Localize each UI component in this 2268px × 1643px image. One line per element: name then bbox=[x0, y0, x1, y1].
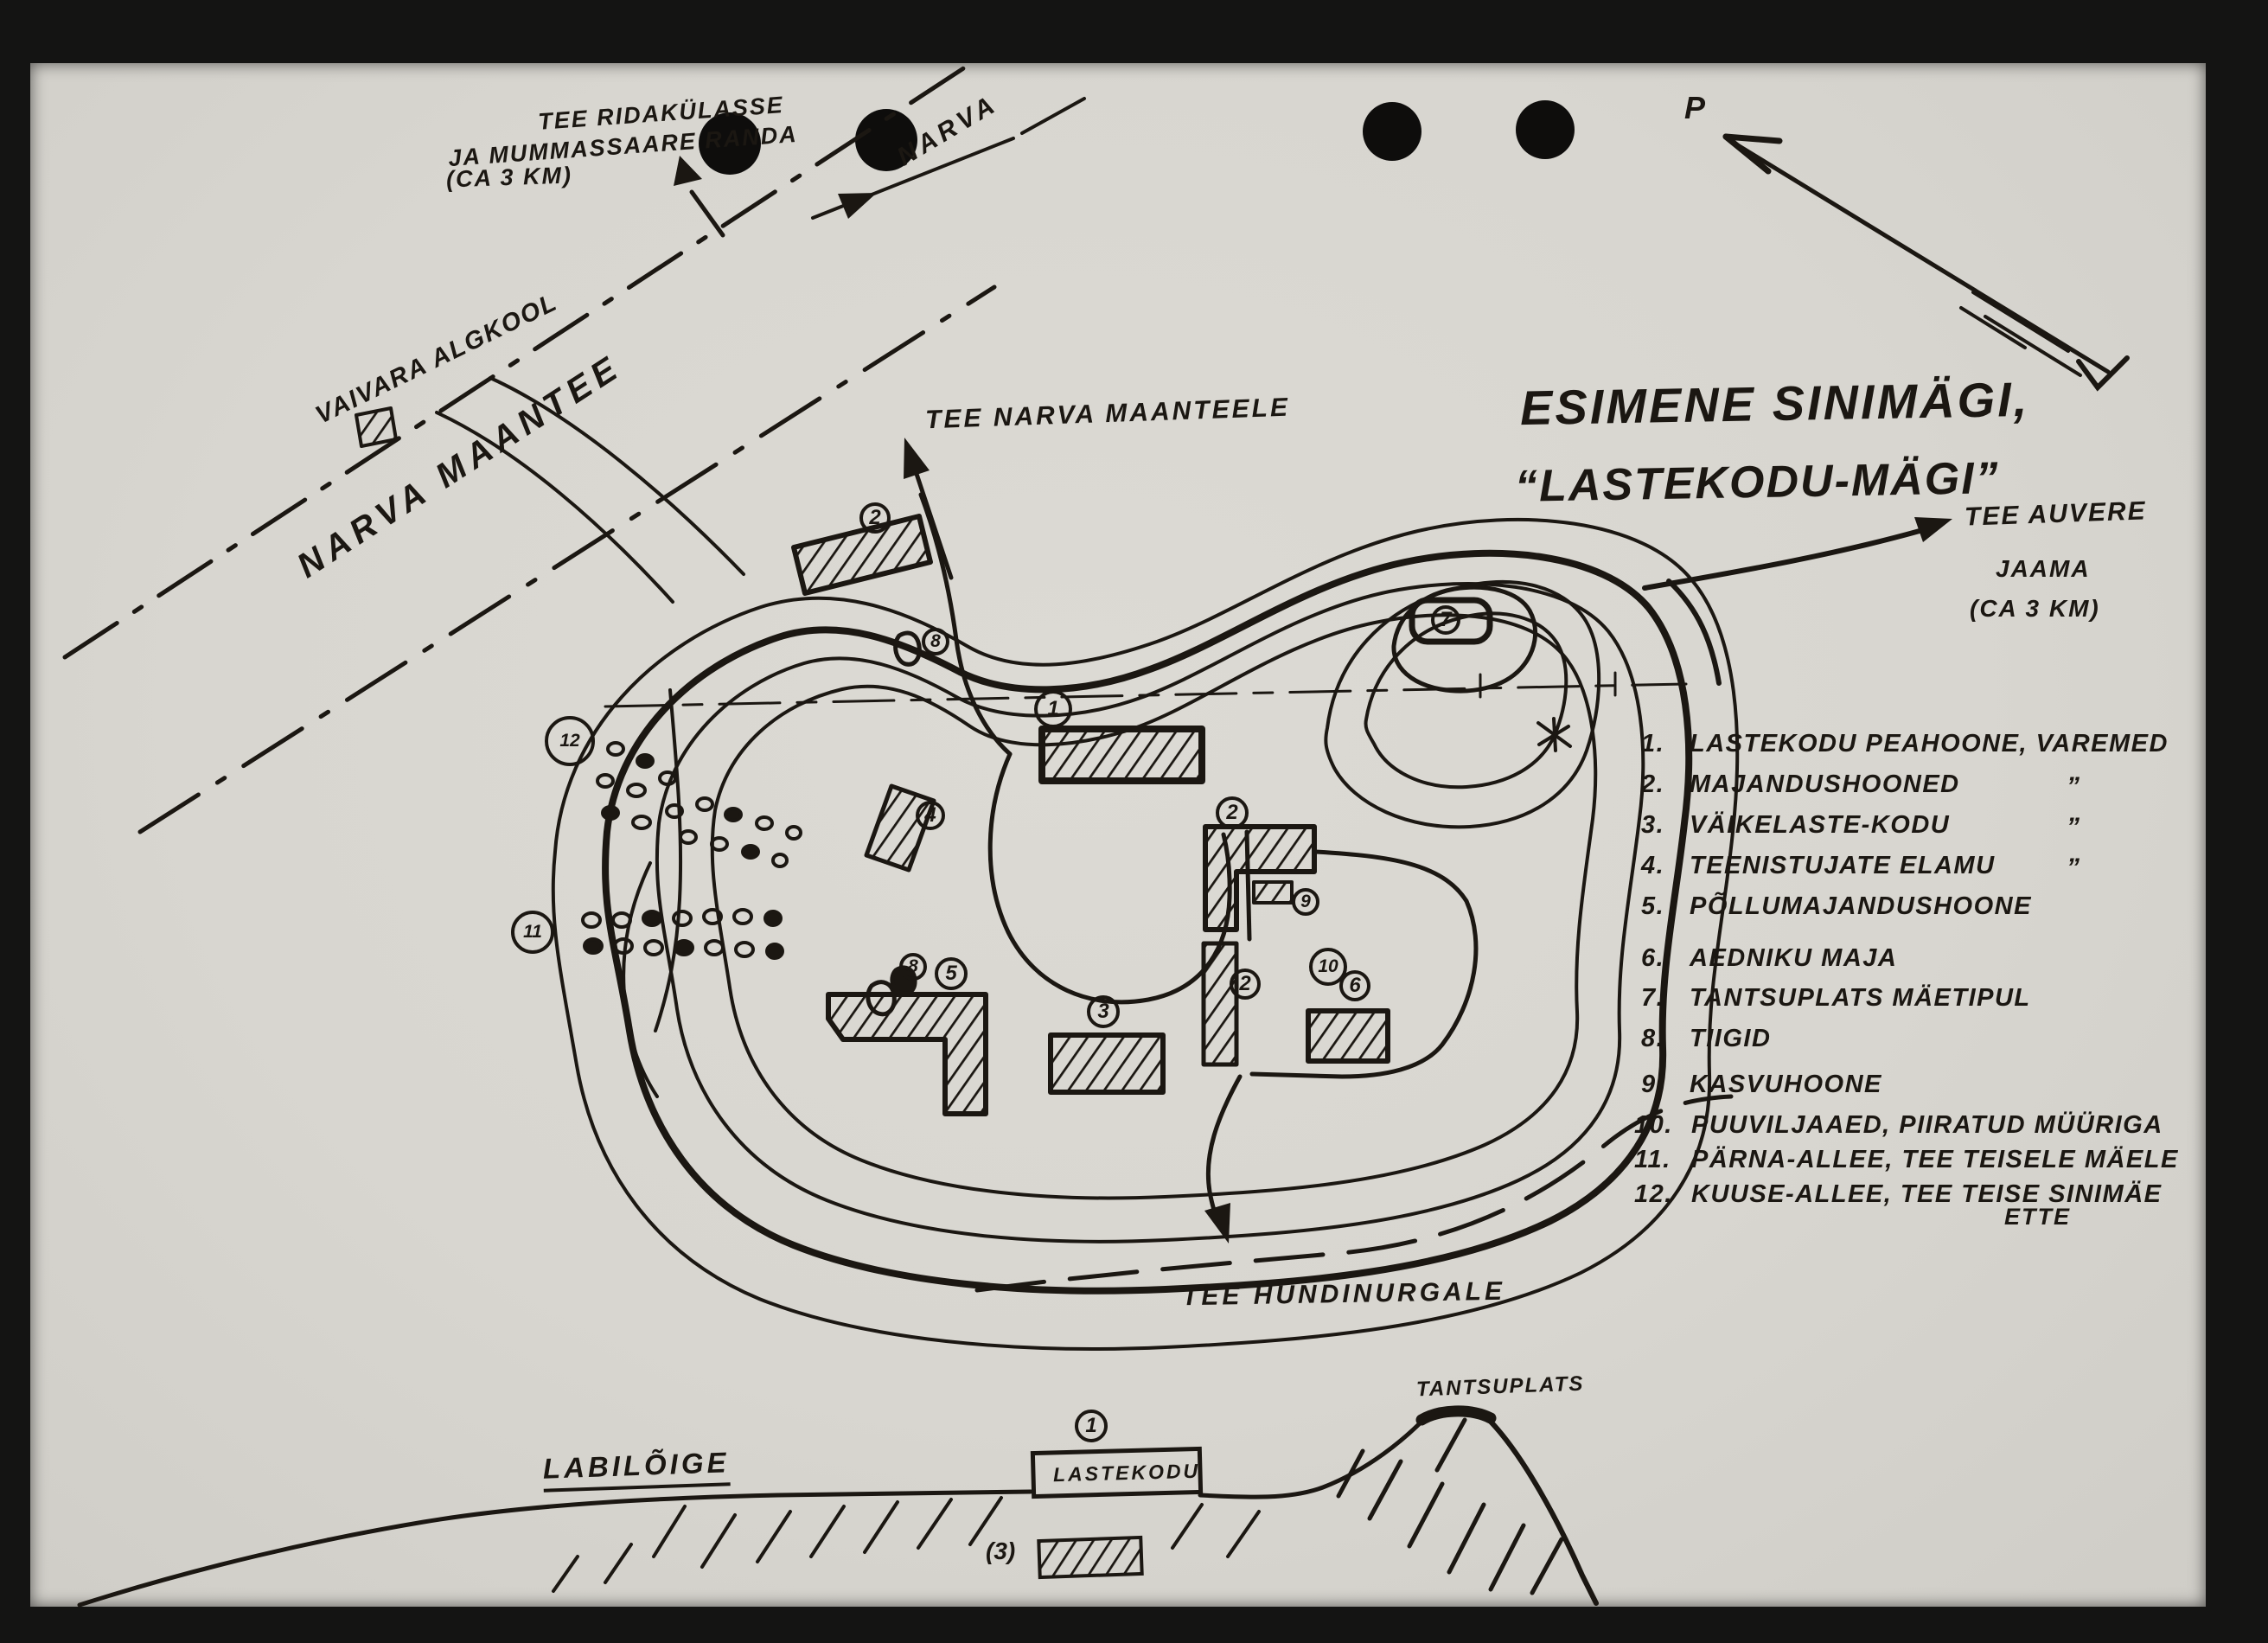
legend-item-7: 7.TANTSUPLATS MÄETIPUL bbox=[1641, 984, 2229, 1013]
map-marker-10: 10 bbox=[1309, 948, 1347, 986]
building-1-main-house bbox=[1042, 729, 1202, 781]
label-section-building3: (3) bbox=[986, 1538, 1015, 1565]
map-marker-9: 9 bbox=[1292, 888, 1319, 916]
legend-item-10: 10.PUUVILJAAED, PIIRATUD MÜÜRIGA bbox=[1634, 1111, 2222, 1140]
scanned-map-photo: TEE RIDAKÜLASSE JA MUMMASSAARE RANDA (CA… bbox=[0, 0, 2268, 1643]
star-mark bbox=[1538, 719, 1570, 751]
map-marker-11: 11 bbox=[511, 911, 554, 954]
building-3 bbox=[1051, 1035, 1163, 1092]
legend-item-11: 11.PÄRNA-ALLEE, TEE TEISELE MÄELE bbox=[1634, 1146, 2222, 1174]
peak-cap bbox=[1421, 1411, 1491, 1420]
label-ridakyla-distance: (CA 3 KM) bbox=[446, 162, 573, 193]
section-line bbox=[605, 684, 1686, 706]
map-title-line1: ESIMENE SINIMÄGI, bbox=[1519, 371, 2029, 436]
building-2-south bbox=[1204, 943, 1236, 1064]
legend-item-2: 2.MAJANDUSHOONED” bbox=[1641, 770, 2229, 799]
building-2-middle bbox=[1205, 827, 1314, 930]
legend-item-5: 5.PÕLLUMAJANDUSHOONE bbox=[1641, 892, 2229, 921]
cross-section-drawing bbox=[80, 1411, 1596, 1605]
map-marker-5: 5 bbox=[935, 957, 968, 990]
north-arrow bbox=[1726, 137, 2127, 387]
terrain-slope-lines bbox=[437, 378, 744, 602]
cross-section-heading: LABILÕIGE bbox=[542, 1446, 730, 1492]
legend-item-12: 12.KUUSE-ALLEE, TEE TEISE SINIMÄE bbox=[1634, 1180, 2222, 1209]
legend-item-1: 1.LASTEKODU PEAHOONE, VAREMED bbox=[1641, 730, 2229, 758]
vaivara-school-symbol bbox=[356, 408, 396, 446]
ridakyla-arrow bbox=[674, 156, 723, 235]
map-marker-3: 3 bbox=[1087, 995, 1120, 1028]
building-6 bbox=[1308, 1011, 1388, 1061]
label-tee-auvere-2: JAAMA bbox=[1996, 555, 2091, 583]
map-marker-12: 12 bbox=[545, 716, 595, 766]
legend-item-6: 6.AEDNIKU MAJA bbox=[1641, 944, 2229, 973]
auvere-arrowhead bbox=[1914, 517, 1952, 542]
legend-item-4: 4.TEENISTUJATE ELAMU” bbox=[1641, 852, 2229, 880]
narva-maanteele-arrowhead bbox=[904, 438, 930, 479]
building-2-north bbox=[794, 516, 930, 593]
legend-item-9: 9.KASVUHOONE bbox=[1641, 1071, 2229, 1099]
map-marker-2-north: 2 bbox=[859, 502, 891, 534]
hill-face-hatching bbox=[1338, 1420, 1562, 1593]
legend-item-12-continuation: ETTE bbox=[2004, 1204, 2071, 1231]
label-tee-hundinurgale: TEE HUNDINURGALE bbox=[1182, 1277, 1506, 1313]
hill-contours bbox=[553, 520, 1737, 1349]
map-title-line2: “LASTEKODU-MÄGI” bbox=[1515, 452, 2001, 513]
map-marker-2-south: 2 bbox=[1230, 969, 1261, 1000]
map-marker-2-middle: 2 bbox=[1216, 796, 1249, 829]
slope-hatching bbox=[553, 1498, 1259, 1591]
building-5 bbox=[828, 994, 986, 1114]
legend-item-3: 3.VÄIKELASTE-KODU” bbox=[1641, 811, 2229, 840]
legend-item-8: 8.TIIGID bbox=[1641, 1025, 2229, 1053]
building-9-greenhouse bbox=[1254, 882, 1292, 903]
map-marker-8-north: 8 bbox=[922, 628, 949, 655]
narva-direction-arrowhead bbox=[838, 193, 877, 219]
label-lastekodu-building: LASTEKODU bbox=[1053, 1460, 1201, 1486]
map-marker-4: 4 bbox=[916, 801, 945, 830]
section-marker-1: 1 bbox=[1075, 1410, 1108, 1442]
label-tee-auvere-3: (CA 3 KM) bbox=[1970, 595, 2100, 623]
building-3-section bbox=[1038, 1538, 1141, 1577]
map-marker-1: 1 bbox=[1034, 690, 1072, 728]
map-marker-7: 7 bbox=[1431, 605, 1460, 635]
label-north-mark: P bbox=[1684, 90, 1705, 126]
map-marker-8-south: 8 bbox=[899, 953, 927, 981]
